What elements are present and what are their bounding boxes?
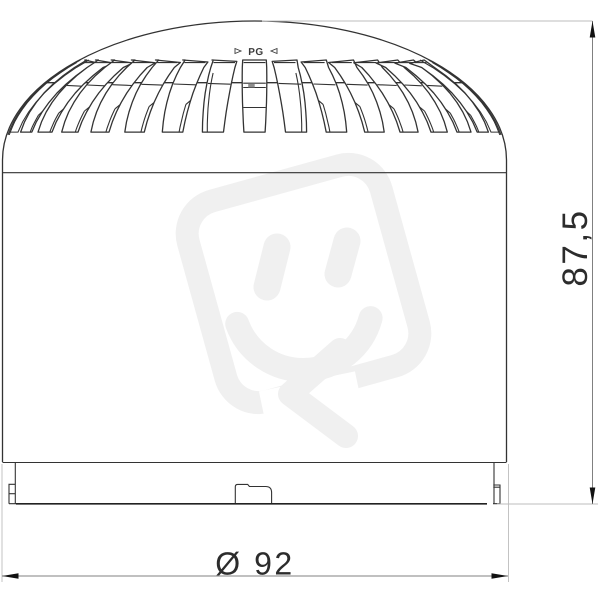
svg-text:PG: PG bbox=[248, 47, 263, 58]
svg-text:87,5: 87,5 bbox=[556, 208, 595, 286]
svg-text:Ø 92: Ø 92 bbox=[215, 545, 294, 581]
